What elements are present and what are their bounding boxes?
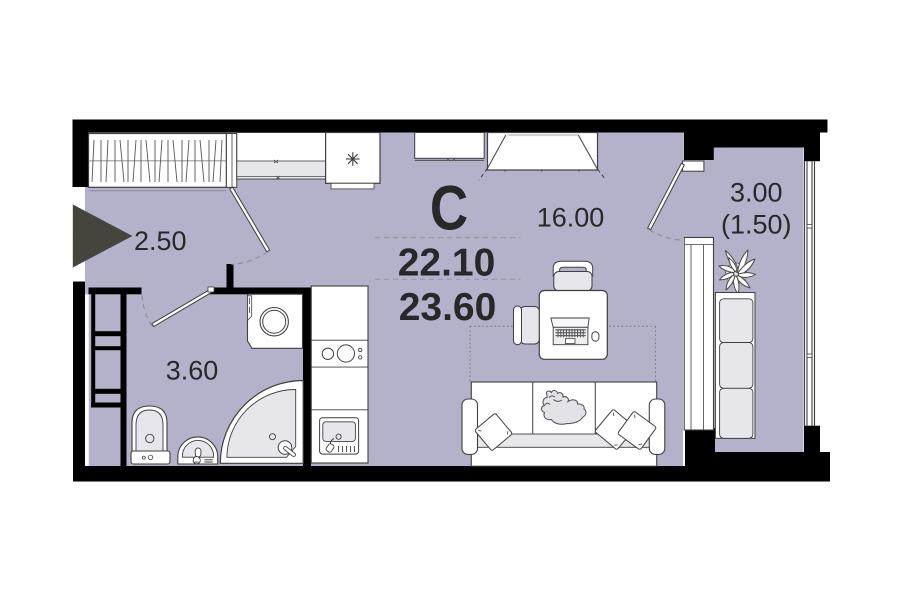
- svg-text:C: C: [430, 173, 468, 243]
- svg-text:22.10: 22.10: [398, 242, 496, 285]
- svg-text:3.00: 3.00: [730, 178, 783, 208]
- svg-text:2.50: 2.50: [134, 226, 187, 256]
- svg-text:23.60: 23.60: [399, 286, 497, 329]
- svg-text:16.00: 16.00: [537, 203, 605, 233]
- svg-text:3.60: 3.60: [166, 356, 219, 386]
- svg-text:(1.50): (1.50): [721, 210, 792, 240]
